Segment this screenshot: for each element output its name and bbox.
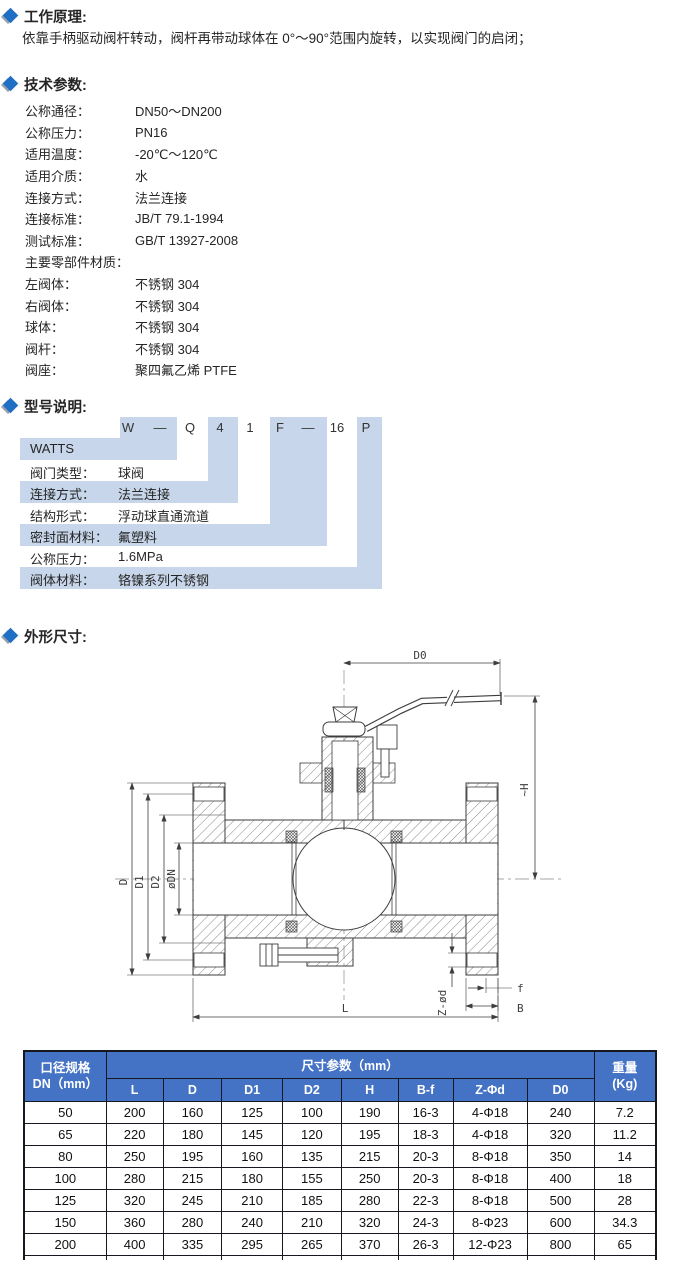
param-value: 水 bbox=[135, 166, 445, 185]
diamond-bullet-icon bbox=[2, 76, 19, 93]
table-row-cutoff bbox=[24, 1255, 656, 1260]
table-cell: 265 bbox=[282, 1233, 341, 1255]
working-principle-text: 依靠手柄驱动阀杆转动，阀杆再带动球体在 0°～90°范围内旋转，以实现阀门的启闭… bbox=[22, 29, 652, 48]
tech-param-row: 左阀体：不锈钢 304 bbox=[25, 273, 445, 295]
table-cell: 320 bbox=[106, 1189, 163, 1211]
dim-label-h: ~H bbox=[518, 783, 531, 796]
param-label: 适用温度： bbox=[25, 144, 135, 163]
table-cell: 155 bbox=[282, 1167, 341, 1189]
dim-label-dn: øDN bbox=[165, 869, 178, 889]
table-cell: 280 bbox=[106, 1167, 163, 1189]
tech-param-row: 适用温度：-20℃～120℃ bbox=[25, 143, 445, 165]
table-cell: 215 bbox=[163, 1167, 222, 1189]
table-row: 8025019516013521520-38-Φ1835014 bbox=[24, 1145, 656, 1167]
tech-params-list: 公称通径：DN50～DN200公称压力：PN16适用温度：-20℃～120℃适用… bbox=[25, 100, 445, 381]
table-cell: 18 bbox=[594, 1167, 656, 1189]
table-cell: 400 bbox=[527, 1167, 594, 1189]
table-col-header: D0 bbox=[527, 1078, 594, 1101]
table-col-header: Z-Φd bbox=[453, 1078, 527, 1101]
table-header-weight-top: 重量 bbox=[612, 1061, 637, 1075]
diamond-bullet-icon bbox=[2, 628, 19, 645]
table-cell: 500 bbox=[527, 1189, 594, 1211]
table-row: 15036028024021032024-38-Φ2360034.3 bbox=[24, 1211, 656, 1233]
dim-label-d: D bbox=[117, 879, 130, 886]
table-cell: 145 bbox=[222, 1123, 283, 1145]
dim-label-d0: D0 bbox=[413, 649, 426, 662]
table-row: 5020016012510019016-34-Φ182407.2 bbox=[24, 1101, 656, 1123]
section-title: 型号说明: bbox=[24, 396, 87, 417]
param-label: 连接标准： bbox=[25, 209, 135, 228]
table-cell bbox=[594, 1255, 656, 1260]
table-cell: 28 bbox=[594, 1189, 656, 1211]
model-row: 结构形式：浮动球直通流道 bbox=[0, 503, 681, 524]
table-col-header: H bbox=[341, 1078, 398, 1101]
param-label: 主要零部件材质： bbox=[25, 252, 135, 271]
table-cell: 160 bbox=[222, 1145, 283, 1167]
table-cell bbox=[453, 1255, 527, 1260]
table-cell: 180 bbox=[163, 1123, 222, 1145]
table-cell: 360 bbox=[106, 1211, 163, 1233]
table-col-header: D bbox=[163, 1078, 222, 1101]
table-header-dn-top: 口径规格 bbox=[40, 1061, 90, 1075]
model-code-char: — bbox=[302, 420, 315, 435]
table-header-dn: 口径规格 DN（mm） bbox=[24, 1051, 106, 1101]
param-label: 阀杆： bbox=[25, 339, 135, 358]
table-cell: 320 bbox=[527, 1123, 594, 1145]
tech-param-row: 主要零部件材质： bbox=[25, 251, 445, 273]
param-value: 不锈钢 304 bbox=[135, 317, 445, 336]
model-row: 密封面材料：氟塑料 bbox=[0, 524, 681, 545]
table-cell: 250 bbox=[341, 1167, 398, 1189]
table-cell: 245 bbox=[163, 1189, 222, 1211]
table-cell: 215 bbox=[341, 1145, 398, 1167]
table-cell: 600 bbox=[527, 1211, 594, 1233]
table-row: 12532024521018528022-38-Φ1850028 bbox=[24, 1189, 656, 1211]
param-label: 右阀体： bbox=[25, 296, 135, 315]
table-cell: 65 bbox=[24, 1123, 106, 1145]
dim-label-z: Z-ød bbox=[436, 990, 449, 1017]
param-value: JB/T 79.1-1994 bbox=[135, 211, 445, 226]
table-cell: 100 bbox=[282, 1101, 341, 1123]
model-code-char: 1 bbox=[246, 420, 253, 435]
model-code-char: W bbox=[122, 420, 134, 435]
table-cell: 20-3 bbox=[398, 1145, 453, 1167]
stem-bonnet bbox=[300, 707, 397, 830]
table-cell: 20-3 bbox=[398, 1167, 453, 1189]
valve-outline-drawing: D0 ~H D D1 D2 øDN Z-ød f B L bbox=[20, 648, 660, 1048]
section-working-principle-heading: 工作原理: bbox=[2, 6, 87, 27]
model-row-value: 1.6MPa bbox=[118, 549, 163, 564]
param-label: 球体： bbox=[25, 317, 135, 336]
table-cell: 320 bbox=[341, 1211, 398, 1233]
table-cell: 100 bbox=[24, 1167, 106, 1189]
table-cell: 185 bbox=[282, 1189, 341, 1211]
param-value: 不锈钢 304 bbox=[135, 339, 445, 358]
table-cell bbox=[106, 1255, 163, 1260]
table-cell: 34.3 bbox=[594, 1211, 656, 1233]
table-cell: 8-Φ18 bbox=[453, 1189, 527, 1211]
table-cell: 280 bbox=[341, 1189, 398, 1211]
model-row: 阀门类型：球阀 bbox=[0, 460, 681, 481]
model-row-label: 阀门类型： bbox=[30, 463, 95, 482]
table-cell: 210 bbox=[282, 1211, 341, 1233]
table-cell bbox=[341, 1255, 398, 1260]
model-code-char: 4 bbox=[216, 420, 223, 435]
table-cell: 160 bbox=[163, 1101, 222, 1123]
param-value: DN50～DN200 bbox=[135, 101, 445, 120]
table-cell: 800 bbox=[527, 1233, 594, 1255]
param-value: -20℃～120℃ bbox=[135, 144, 445, 163]
model-row-value: 球阀 bbox=[118, 463, 144, 482]
tech-param-row: 连接方式：法兰连接 bbox=[25, 186, 445, 208]
table-cell: 8-Φ18 bbox=[453, 1167, 527, 1189]
table-row: 6522018014512019518-34-Φ1832011.2 bbox=[24, 1123, 656, 1145]
param-label: 公称压力： bbox=[25, 123, 135, 142]
table-cell: 240 bbox=[222, 1211, 283, 1233]
table-cell: 7.2 bbox=[594, 1101, 656, 1123]
table-cell: 280 bbox=[163, 1211, 222, 1233]
table-cell: 18-3 bbox=[398, 1123, 453, 1145]
table-cell: 240 bbox=[527, 1101, 594, 1123]
table-col-header: D2 bbox=[282, 1078, 341, 1101]
table-cell: 190 bbox=[341, 1101, 398, 1123]
table-cell: 26-3 bbox=[398, 1233, 453, 1255]
table-cell: 8-Φ18 bbox=[453, 1145, 527, 1167]
tech-param-row: 球体：不锈钢 304 bbox=[25, 316, 445, 338]
section-title: 工作原理: bbox=[24, 6, 87, 27]
model-row: 连接方式：法兰连接 bbox=[0, 481, 681, 502]
table-row: 20040033529526537026-312-Φ2380065 bbox=[24, 1233, 656, 1255]
table-cell: 195 bbox=[341, 1123, 398, 1145]
param-value: 聚四氟乙烯 PTFE bbox=[135, 360, 445, 379]
param-label: 适用介质： bbox=[25, 166, 135, 185]
table-cell: 150 bbox=[24, 1211, 106, 1233]
tech-param-row: 测试标准：GB/T 13927-2008 bbox=[25, 230, 445, 252]
model-code-diagram: W—Q41F—16P WATTS阀门类型：球阀连接方式：法兰连接结构形式：浮动球… bbox=[0, 417, 681, 592]
diamond-bullet-icon bbox=[2, 8, 19, 25]
model-row-value: 氟塑料 bbox=[118, 527, 157, 546]
tech-param-row: 公称压力：PN16 bbox=[25, 122, 445, 144]
table-cell bbox=[398, 1255, 453, 1260]
table-cell bbox=[163, 1255, 222, 1260]
model-code-char: P bbox=[362, 420, 371, 435]
table-cell: 295 bbox=[222, 1233, 283, 1255]
param-value: 不锈钢 304 bbox=[135, 296, 445, 315]
model-row-label: 阀体材料： bbox=[30, 570, 95, 589]
param-label: 连接方式： bbox=[25, 188, 135, 207]
table-cell: 200 bbox=[24, 1233, 106, 1255]
table-cell bbox=[527, 1255, 594, 1260]
param-value: PN16 bbox=[135, 125, 445, 140]
table-col-header: D1 bbox=[222, 1078, 283, 1101]
table-cell bbox=[222, 1255, 283, 1260]
table-header-weight-bottom: (Kg) bbox=[612, 1077, 637, 1091]
table-cell: 24-3 bbox=[398, 1211, 453, 1233]
tech-param-row: 连接标准：JB/T 79.1-1994 bbox=[25, 208, 445, 230]
tech-param-row: 右阀体：不锈钢 304 bbox=[25, 294, 445, 316]
table-cell: 135 bbox=[282, 1145, 341, 1167]
tech-param-row: 公称通径：DN50～DN200 bbox=[25, 100, 445, 122]
table-cell: 180 bbox=[222, 1167, 283, 1189]
table-cell: 22-3 bbox=[398, 1189, 453, 1211]
table-cell: 250 bbox=[106, 1145, 163, 1167]
table-cell bbox=[282, 1255, 341, 1260]
table-cell: 120 bbox=[282, 1123, 341, 1145]
param-label: 左阀体： bbox=[25, 274, 135, 293]
table-cell: 11.2 bbox=[594, 1123, 656, 1145]
table-cell: 370 bbox=[341, 1233, 398, 1255]
dim-label-b: B bbox=[517, 1002, 524, 1015]
param-label: 公称通径： bbox=[25, 101, 135, 120]
table-cell: 8-Φ23 bbox=[453, 1211, 527, 1233]
diamond-bullet-icon bbox=[2, 398, 19, 415]
table-col-header: B-f bbox=[398, 1078, 453, 1101]
table-cell: 210 bbox=[222, 1189, 283, 1211]
table-col-header: L bbox=[106, 1078, 163, 1101]
table-cell: 65 bbox=[594, 1233, 656, 1255]
table-cell: 335 bbox=[163, 1233, 222, 1255]
model-row-value: 铬镍系列不锈钢 bbox=[118, 570, 209, 589]
model-row-value: 浮动球直通流道 bbox=[118, 506, 209, 525]
table-row: 10028021518015525020-38-Φ1840018 bbox=[24, 1167, 656, 1189]
param-value: GB/T 13927-2008 bbox=[135, 233, 445, 248]
dim-label-f: f bbox=[517, 982, 524, 995]
param-value: 不锈钢 304 bbox=[135, 274, 445, 293]
table-cell: 80 bbox=[24, 1145, 106, 1167]
table-header-dn-bottom: DN（mm） bbox=[33, 1077, 98, 1091]
table-cell: 4-Φ18 bbox=[453, 1101, 527, 1123]
tech-param-row: 阀座：聚四氟乙烯 PTFE bbox=[25, 359, 445, 381]
section-title: 外形尺寸: bbox=[24, 626, 87, 647]
model-code-char: 16 bbox=[330, 420, 344, 435]
model-row-label: 密封面材料： bbox=[30, 527, 108, 546]
table-header-size-params: 尺寸参数（mm） bbox=[106, 1051, 594, 1078]
table-cell bbox=[24, 1255, 106, 1260]
dim-label-d1: D1 bbox=[133, 875, 146, 888]
table-cell: 200 bbox=[106, 1101, 163, 1123]
model-row: WATTS bbox=[0, 438, 681, 459]
table-cell: 400 bbox=[106, 1233, 163, 1255]
dim-label-l: L bbox=[342, 1002, 349, 1015]
section-model-heading: 型号说明: bbox=[2, 396, 87, 417]
model-row-label: 公称压力： bbox=[30, 549, 95, 568]
table-cell: 14 bbox=[594, 1145, 656, 1167]
valve-handle bbox=[366, 690, 501, 729]
section-title: 技术参数: bbox=[24, 74, 87, 95]
table-cell: 125 bbox=[24, 1189, 106, 1211]
tech-param-row: 适用介质：水 bbox=[25, 165, 445, 187]
dimension-table: 口径规格 DN（mm） 尺寸参数（mm） 重量 (Kg) LDD1D2HB-fZ… bbox=[23, 1050, 657, 1260]
table-header-weight: 重量 (Kg) bbox=[594, 1051, 656, 1101]
datasheet-page: 工作原理: 依靠手柄驱动阀杆转动，阀杆再带动球体在 0°～90°范围内旋转，以实… bbox=[0, 0, 681, 1277]
model-code-char: Q bbox=[185, 420, 195, 435]
model-code-char: — bbox=[154, 420, 167, 435]
model-row: 公称压力：1.6MPa bbox=[0, 546, 681, 567]
table-cell: 12-Φ23 bbox=[453, 1233, 527, 1255]
dim-label-d2: D2 bbox=[149, 875, 162, 888]
table-cell: 220 bbox=[106, 1123, 163, 1145]
table-cell: 350 bbox=[527, 1145, 594, 1167]
tech-param-row: 阀杆：不锈钢 304 bbox=[25, 338, 445, 360]
model-row-label: WATTS bbox=[30, 441, 74, 456]
param-label: 测试标准： bbox=[25, 231, 135, 250]
table-cell: 195 bbox=[163, 1145, 222, 1167]
table-cell: 4-Φ18 bbox=[453, 1123, 527, 1145]
model-row-label: 结构形式： bbox=[30, 506, 95, 525]
model-row-label: 连接方式： bbox=[30, 484, 95, 503]
model-code-char: F bbox=[276, 420, 284, 435]
model-row: 阀体材料：铬镍系列不锈钢 bbox=[0, 567, 681, 588]
table-cell: 50 bbox=[24, 1101, 106, 1123]
table-cell: 16-3 bbox=[398, 1101, 453, 1123]
model-row-value: 法兰连接 bbox=[118, 484, 170, 503]
table-cell: 125 bbox=[222, 1101, 283, 1123]
section-dimensions-heading: 外形尺寸: bbox=[2, 626, 87, 647]
param-value: 法兰连接 bbox=[135, 188, 445, 207]
param-label: 阀座： bbox=[25, 360, 135, 379]
section-tech-params-heading: 技术参数: bbox=[2, 74, 87, 95]
